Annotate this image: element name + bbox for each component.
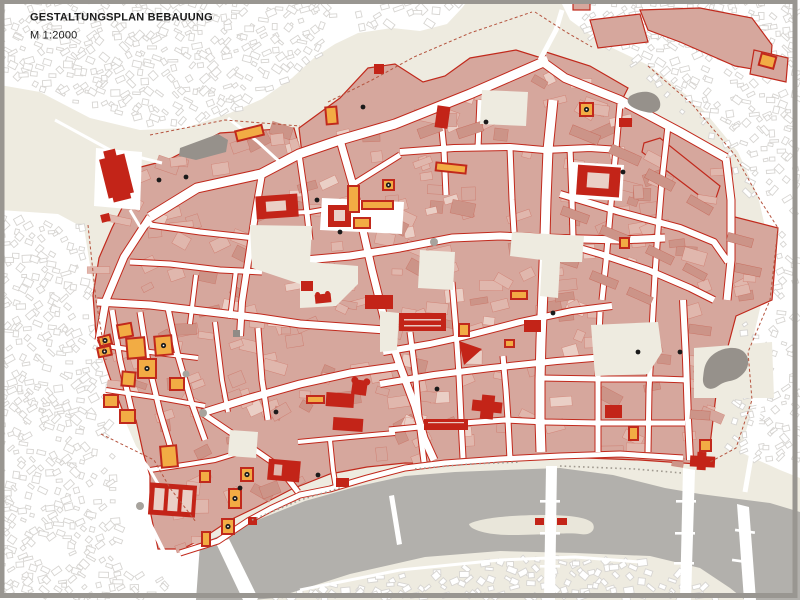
svg-text:M 1:2000: M 1:2000 xyxy=(30,30,77,42)
svg-text:GESTALTUNGSPLAN BEBAUUNG: GESTALTUNGSPLAN BEBAUUNG xyxy=(30,12,213,24)
